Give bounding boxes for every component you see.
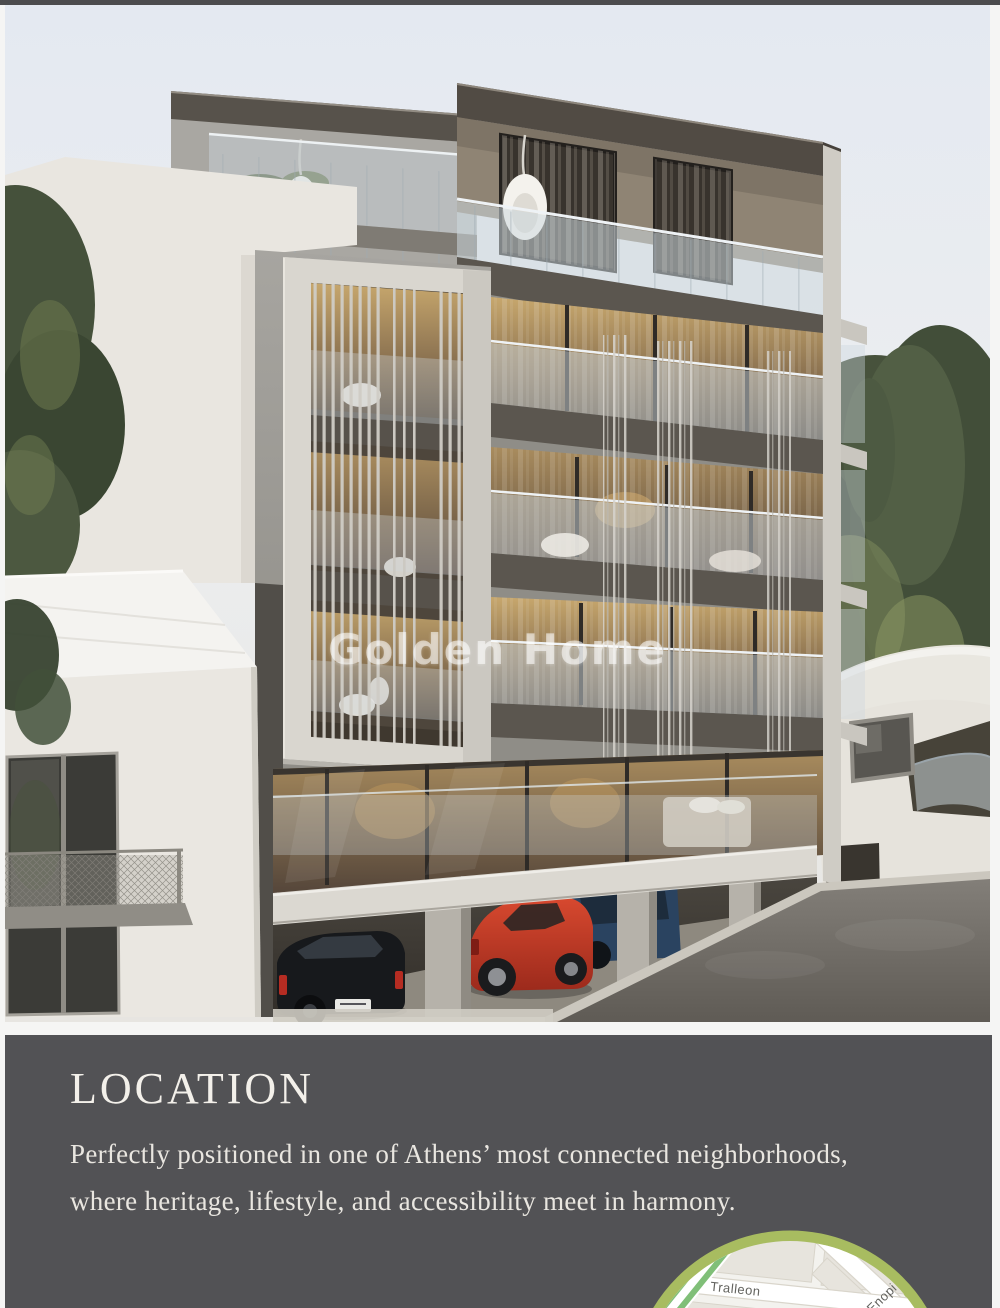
mesh-balcony [5,850,193,929]
section-title: LOCATION [70,1063,314,1114]
watermark-logo: Golden Home [328,625,667,674]
description-line-1: Perfectly positioned in one of Athens’ m… [70,1139,848,1169]
black-car [275,931,407,1022]
building-photo: Golden Home [5,5,990,1022]
building-render [5,5,990,1022]
location-map: Tralleon Enopi [620,1190,992,1308]
location-section: LOCATION Perfectly positioned in one of … [5,1035,992,1308]
right-side-fin [823,145,841,885]
